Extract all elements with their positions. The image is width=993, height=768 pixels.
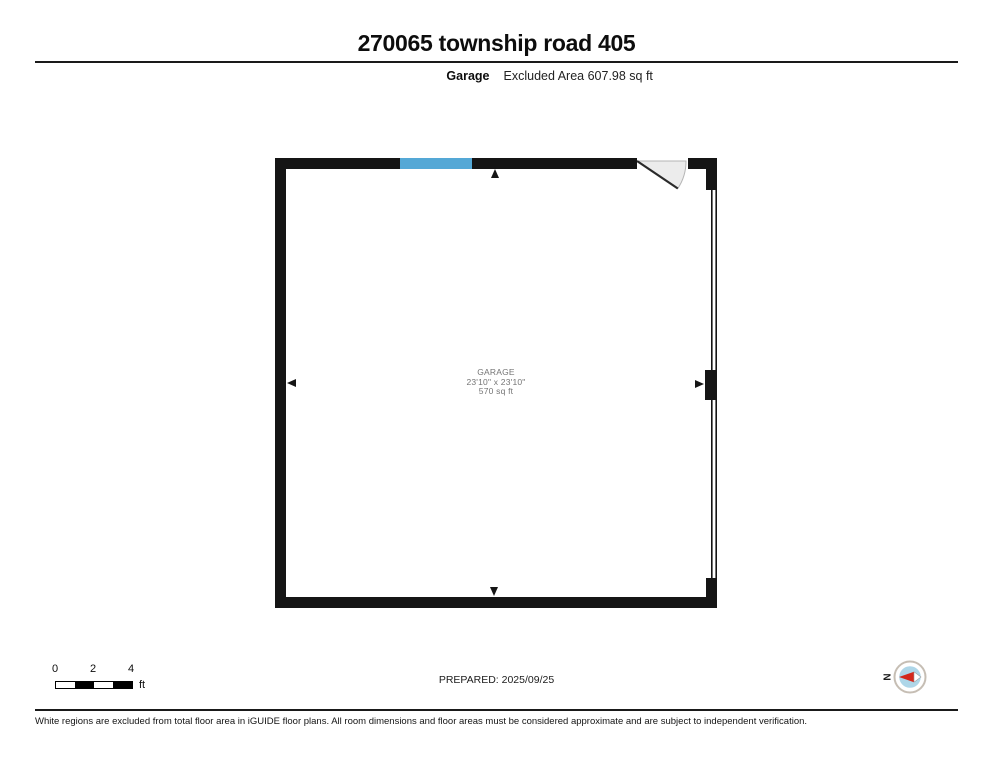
floor-plan-page: 270065 township road 405 Garage Excluded…	[0, 0, 993, 768]
arrow-up-icon	[491, 169, 499, 178]
page-title: 270065 township road 405	[0, 30, 993, 57]
wall-bottom	[275, 597, 717, 608]
plan-subheader: Garage Excluded Area 607.98 sq ft	[0, 69, 993, 83]
room-label: GARAGE 23'10" x 23'10" 570 sq ft	[275, 368, 717, 397]
footer-divider	[35, 709, 958, 711]
disclaimer-text: White regions are excluded from total fl…	[35, 716, 958, 727]
prepared-date: PREPARED: 2025/09/25	[0, 674, 993, 686]
wall-right-bottom-stub	[706, 578, 717, 608]
north-letter: N	[883, 673, 894, 680]
window-marker	[400, 158, 472, 169]
floor-plan: GARAGE 23'10" x 23'10" 570 sq ft	[275, 158, 717, 608]
header-divider	[35, 61, 958, 63]
room-name-label: Garage	[0, 69, 497, 83]
room-label-area: 570 sq ft	[275, 387, 717, 397]
wall-right-top-stub	[706, 158, 717, 190]
compass-icon: N	[880, 657, 928, 697]
arrow-down-icon	[490, 587, 498, 596]
excluded-area-label: Excluded Area 607.98 sq ft	[497, 69, 993, 83]
